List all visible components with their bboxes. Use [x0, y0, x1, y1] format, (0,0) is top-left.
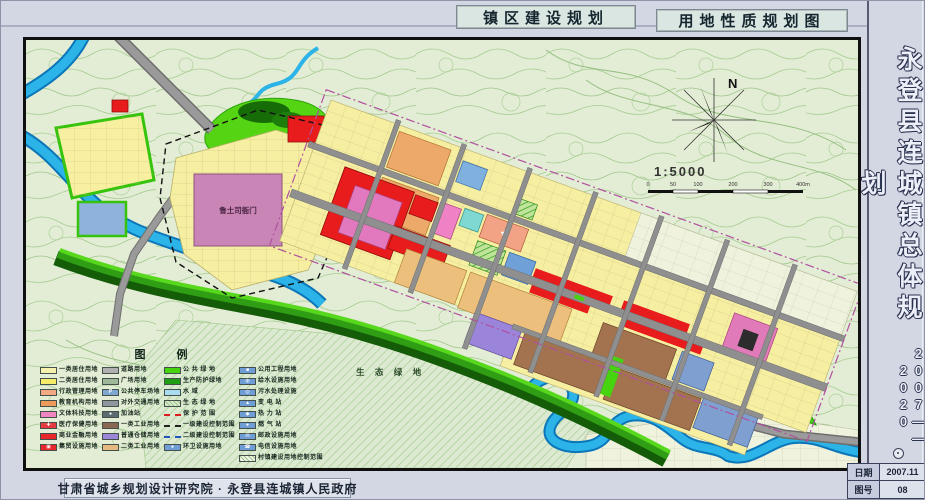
- legend-swatch: [102, 433, 119, 440]
- legend-item-label: 广场用地: [121, 378, 147, 385]
- legend-title: 图 例: [40, 346, 282, 362]
- scale-tick-label: 100: [693, 182, 702, 188]
- legend-swatch-glyph: ■: [246, 368, 249, 373]
- legend-item: 教育机构用地: [40, 399, 98, 408]
- legend-item-label: 医疗保健用地: [59, 422, 98, 429]
- legend-item: 生产防护绿地: [164, 377, 235, 386]
- legend-item-label: 电信设施用地: [258, 444, 297, 451]
- legend-item-label: 教育机构用地: [59, 400, 98, 407]
- legend-swatch: ◍: [239, 378, 256, 385]
- legend-swatch: [40, 433, 57, 440]
- legend-swatch-glyph: ●: [171, 445, 174, 450]
- scale-tick-label: 200: [728, 182, 737, 188]
- legend-swatch-glyph: ◎: [245, 390, 249, 395]
- map-legend: 图 例 一类居住用地二类居住用地行政管理用地教育机构用地文体科技用地✚医疗保健用…: [40, 346, 282, 463]
- legend-swatch: [164, 378, 181, 385]
- legend-item: 保 护 范 围: [164, 410, 235, 419]
- legend-item: ◆热 力 站: [239, 410, 323, 419]
- title-construction-plan: 镇区建设规划: [456, 5, 636, 29]
- legend-item: 生 态 绿 地: [164, 399, 235, 408]
- legend-swatch-glyph: ◍: [245, 379, 249, 384]
- legend-item-label: 公用工程用地: [258, 367, 297, 374]
- legend-item: ✉邮政设施用地: [239, 432, 323, 441]
- legend-swatch: [102, 422, 119, 429]
- scale-text: 1:5000: [654, 164, 706, 179]
- legend-column-2: 道路用地广场用地P公共停车场地对外交通用地●加油站一类工业用地普通仓储用地二类工…: [102, 366, 160, 463]
- north-label: N: [728, 76, 737, 91]
- legend-item: ●环卫设施用地: [164, 443, 235, 452]
- title-landuse-map-label: 用地性质规划图: [678, 10, 825, 31]
- legend-swatch: [40, 389, 57, 396]
- sheet-number-label: 图号: [848, 481, 880, 498]
- legend-item: 普通仓储用地: [102, 432, 160, 441]
- legend-item: 行政管理用地: [40, 388, 98, 397]
- legend-swatch: [164, 433, 181, 440]
- legend-swatch: ●: [164, 444, 181, 451]
- legend-item: 二级建设控制范围: [164, 432, 235, 441]
- legend-swatch: ■: [239, 367, 256, 374]
- legend-item: ●燃 气 站: [239, 421, 323, 430]
- legend-item-label: 普通仓储用地: [121, 433, 160, 440]
- legend-swatch: [40, 411, 57, 418]
- legend-swatch: ●: [239, 422, 256, 429]
- legend-item-label: 一类工业用地: [121, 422, 160, 429]
- legend-item: ✚医疗保健用地: [40, 421, 98, 430]
- plan-period: 2007——2020: [869, 337, 925, 457]
- legend-item: 一级建设控制范围: [164, 421, 235, 430]
- date-value: 2007.11: [880, 464, 925, 480]
- legend-swatch: [164, 367, 181, 374]
- legend-item: P公共停车场地: [102, 388, 160, 397]
- legend-swatch: [239, 455, 256, 462]
- legend-item-label: 燃 气 站: [258, 422, 282, 429]
- legend-swatch: ☎: [239, 444, 256, 451]
- sheet-info-table: 日期 2007.11 图号 08: [847, 463, 925, 499]
- legend-item-label: 道路用地: [121, 367, 147, 374]
- legend-item: ☎电信设施用地: [239, 443, 323, 452]
- legend-item-label: 邮政设施用地: [258, 433, 297, 440]
- legend-item-label: 商业金融用地: [59, 433, 98, 440]
- legend-item-label: 二类工业用地: [121, 444, 160, 451]
- legend-item-label: 公共停车场地: [121, 389, 160, 396]
- legend-swatch-glyph: ▣: [46, 445, 51, 450]
- legend-item: ◎污水处理设施: [239, 388, 323, 397]
- legend-item-label: 保 护 范 围: [183, 411, 216, 418]
- legend-swatch: [40, 400, 57, 407]
- legend-item-label: 给水设施用地: [258, 378, 297, 385]
- date-label: 日期: [848, 464, 880, 480]
- legend-swatch: ▲: [239, 400, 256, 407]
- scale-tick-label: 400m: [796, 182, 810, 188]
- legend-item: 文体科技用地: [40, 410, 98, 419]
- legend-column-3: 公 共 绿 地生产防护绿地水 域生 态 绿 地保 护 范 围一级建设控制范围二级…: [164, 366, 235, 463]
- legend-item: ▲变 电 站: [239, 399, 323, 408]
- legend-item: 村镇建设用地控制范围: [239, 454, 323, 463]
- legend-swatch-glyph: ✚: [46, 423, 50, 428]
- legend-swatch: ●: [102, 411, 119, 418]
- title-landuse-map: 用地性质规划图: [656, 9, 848, 32]
- legend-swatch: [164, 411, 181, 418]
- legend-item-label: 一类居住用地: [59, 367, 98, 374]
- legend-swatch-glyph: ●: [246, 423, 249, 428]
- legend-column-1: 一类居住用地二类居住用地行政管理用地教育机构用地文体科技用地✚医疗保健用地商业金…: [40, 366, 98, 463]
- title-construction-plan-label: 镇区建设规划: [483, 7, 609, 28]
- legend-item: 二类工业用地: [102, 443, 160, 452]
- legend-swatch: ✉: [239, 433, 256, 440]
- legend-swatch: [164, 389, 181, 396]
- eco-green-label: 生 态 绿 地: [356, 367, 425, 377]
- legend-swatch: ◎: [239, 389, 256, 396]
- credits-text: 甘肃省城乡规划设计研究院 · 永登县连城镇人民政府: [58, 480, 358, 497]
- legend-item-label: 生产防护绿地: [183, 378, 222, 385]
- legend-swatch: ◆: [239, 411, 256, 418]
- legend-item: 二类居住用地: [40, 377, 98, 386]
- legend-item-label: 热 力 站: [258, 411, 282, 418]
- legend-item: 一类居住用地: [40, 366, 98, 375]
- scale-tick-label: 0: [646, 182, 649, 188]
- legend-swatch-glyph: ●: [109, 412, 112, 417]
- sheet-number-row: 图号 08: [848, 481, 925, 498]
- legend-swatch: ✚: [40, 422, 57, 429]
- legend-item: 广场用地: [102, 377, 160, 386]
- legend-swatch: P: [102, 389, 119, 396]
- credits-bar: 甘肃省城乡规划设计研究院 · 永登县连城镇人民政府: [64, 478, 351, 498]
- title-block-sidebar: 永登县连城镇总体规划 2007——2020: [867, 1, 925, 500]
- legend-item-label: 村镇建设用地控制范围: [258, 455, 323, 462]
- legend-item-label: 二级建设控制范围: [183, 433, 235, 440]
- scale-tick-label: 300: [763, 182, 772, 188]
- legend-item: 水 域: [164, 388, 235, 397]
- legend-item: ▣集贸设施用地: [40, 443, 98, 452]
- stamp-circle-icon: [893, 448, 904, 459]
- legend-swatch: [102, 378, 119, 385]
- legend-swatch-glyph: ☎: [244, 445, 250, 450]
- legend-swatch: [102, 400, 119, 407]
- legend-item: ■公用工程用地: [239, 366, 323, 375]
- legend-item-label: 加油站: [121, 411, 141, 418]
- legend-item-label: 污水处理设施: [258, 389, 297, 396]
- plan-sheet: 镇区建设规划 用地性质规划图: [0, 0, 925, 500]
- legend-swatch: [40, 378, 57, 385]
- legend-item-label: 一级建设控制范围: [183, 422, 235, 429]
- legend-item: 道路用地: [102, 366, 160, 375]
- legend-swatch-glyph: P: [109, 390, 112, 395]
- legend-swatch-glyph: ◆: [246, 412, 250, 417]
- legend-item: 一类工业用地: [102, 421, 160, 430]
- legend-swatch: ▣: [40, 444, 57, 451]
- legend-swatch: [40, 367, 57, 374]
- legend-item-label: 二类居住用地: [59, 378, 98, 385]
- legend-swatch-glyph: ▲: [245, 401, 250, 406]
- legend-swatch: [102, 367, 119, 374]
- legend-swatch: [102, 444, 119, 451]
- legend-item-label: 对外交通用地: [121, 400, 160, 407]
- map-canvas[interactable]: 鲁土司衙门 ✚: [23, 37, 861, 471]
- legend-item-label: 文体科技用地: [59, 411, 98, 418]
- legend-item-label: 变 电 站: [258, 400, 282, 407]
- legend-swatch: [164, 400, 181, 407]
- legend-swatch-glyph: ✉: [245, 434, 249, 439]
- legend-item-label: 集贸设施用地: [59, 444, 98, 451]
- legend-swatch: [164, 422, 181, 429]
- drawing-set-title: 永登县连城镇总体规划: [869, 35, 925, 335]
- sheet-number-value: 08: [880, 481, 925, 498]
- legend-item-label: 水 域: [183, 389, 198, 396]
- legend-item: 对外交通用地: [102, 399, 160, 408]
- legend-item: ●加油站: [102, 410, 160, 419]
- historic-site-label: 鲁土司衙门: [219, 205, 257, 215]
- date-row: 日期 2007.11: [848, 464, 925, 481]
- legend-column-4: ■公用工程用地◍给水设施用地◎污水处理设施▲变 电 站◆热 力 站●燃 气 站✉…: [239, 366, 323, 463]
- legend-item-label: 行政管理用地: [59, 389, 98, 396]
- legend-item: 商业金融用地: [40, 432, 98, 441]
- legend-item: 公 共 绿 地: [164, 366, 235, 375]
- scale-tick-label: 50: [670, 182, 676, 188]
- legend-item-label: 公 共 绿 地: [183, 367, 216, 374]
- legend-item-label: 生 态 绿 地: [183, 400, 216, 407]
- legend-item: ◍给水设施用地: [239, 377, 323, 386]
- legend-item-label: 环卫设施用地: [183, 444, 222, 451]
